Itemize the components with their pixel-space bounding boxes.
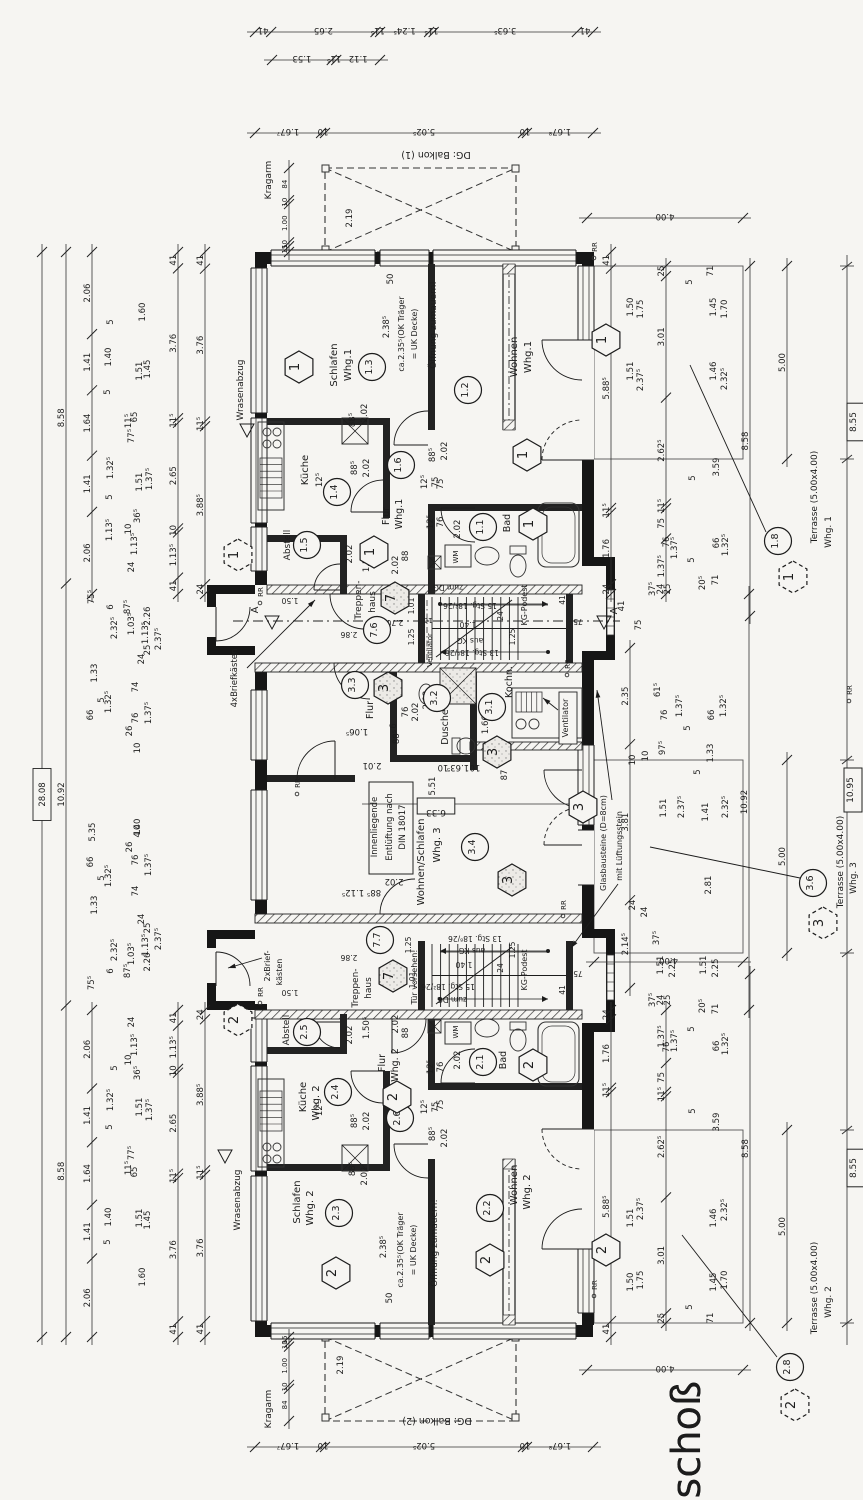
svg-text:1.12: 1.12: [349, 53, 368, 63]
svg-text:66: 66: [86, 710, 96, 721]
svg-text:WM: WM: [452, 551, 460, 564]
svg-text:3.4: 3.4: [467, 839, 478, 854]
svg-text:5: 5: [105, 1124, 115, 1129]
svg-text:2.26: 2.26: [143, 953, 153, 972]
svg-text:2.02: 2.02: [391, 1015, 401, 1034]
svg-text:1.41: 1.41: [83, 1222, 93, 1241]
svg-text:1.67⁸: 1.67⁸: [548, 1440, 571, 1450]
svg-text:24: 24: [628, 900, 638, 911]
svg-text:2.02: 2.02: [345, 1026, 355, 1045]
svg-text:2.02: 2.02: [362, 1112, 372, 1131]
svg-text:1.13⁵: 1.13⁵: [105, 519, 115, 541]
svg-text:11⁵: 11⁵: [196, 417, 206, 431]
svg-text:75: 75: [573, 969, 583, 978]
svg-text:8.58: 8.58: [741, 1139, 751, 1158]
svg-text:KG-Podest: KG-Podest: [520, 949, 529, 990]
svg-text:66: 66: [86, 857, 96, 868]
svg-text:13 Stg. 18⁸/26: 13 Stg. 18⁸/26: [445, 648, 499, 657]
svg-text:8.58: 8.58: [57, 1162, 67, 1181]
svg-text:Ventilator: Ventilator: [426, 633, 434, 667]
room-markers: 1.11.21.31.41.51.67.63.33.23.13.47.72.12…: [224, 324, 837, 1421]
svg-text:13 Stg. 18⁸/26: 13 Stg. 18⁸/26: [448, 934, 502, 943]
svg-text:1.51: 1.51: [699, 956, 709, 975]
svg-text:2.3: 2.3: [331, 1205, 342, 1220]
svg-text:3.76: 3.76: [169, 334, 179, 353]
svg-text:1.6: 1.6: [393, 457, 404, 472]
svg-text:75: 75: [657, 1072, 667, 1083]
svg-text:1.41: 1.41: [701, 803, 711, 822]
svg-text:1: 1: [595, 336, 610, 344]
svg-text:1.64: 1.64: [83, 1164, 93, 1183]
svg-text:41: 41: [558, 985, 567, 995]
svg-text:75: 75: [634, 620, 644, 631]
svg-text:1.70: 1.70: [720, 1271, 730, 1290]
svg-text:Bad: Bad: [498, 1051, 509, 1069]
svg-text:76: 76: [436, 1062, 446, 1073]
svg-text:3.63⁵: 3.63⁵: [494, 25, 516, 35]
svg-text:1.03⁵: 1.03⁵: [127, 943, 137, 965]
svg-text:41: 41: [558, 595, 567, 605]
svg-text:Wohnen: Wohnen: [509, 337, 520, 378]
svg-text:10: 10: [124, 1055, 134, 1066]
svg-text:2.02: 2.02: [360, 404, 370, 423]
svg-text:7.7: 7.7: [372, 932, 383, 947]
svg-text:1.51: 1.51: [626, 1209, 636, 1228]
svg-text:RR: RR: [560, 900, 568, 910]
svg-text:15: 15: [281, 245, 289, 254]
svg-text:76: 76: [131, 855, 141, 866]
svg-text:Treppen-: Treppen-: [354, 580, 364, 620]
svg-text:1.37⁵: 1.37⁵: [145, 468, 155, 490]
svg-text:10: 10: [438, 762, 449, 772]
svg-text:Wrasenabzug: Wrasenabzug: [236, 359, 246, 420]
svg-text:10: 10: [281, 1340, 289, 1349]
svg-text:Küche: Küche: [300, 455, 311, 485]
svg-text:zum DG: zum DG: [437, 995, 467, 1004]
svg-text:1: 1: [516, 451, 531, 459]
svg-text:Abstell: Abstell: [283, 530, 293, 561]
svg-text:RR: RR: [846, 685, 854, 695]
svg-text:88⁵: 88⁵: [428, 1127, 438, 1141]
svg-text:3.76: 3.76: [196, 336, 206, 355]
svg-text:1.13⁵: 1.13⁵: [169, 1036, 179, 1058]
svg-text:1.06⁵: 1.06⁵: [346, 726, 368, 736]
svg-text:2: 2: [784, 1401, 799, 1409]
svg-text:KG-Podest: KG-Podest: [520, 584, 529, 625]
svg-text:6: 6: [389, 723, 399, 728]
svg-text:1.51: 1.51: [626, 362, 636, 381]
interior-walls: [267, 264, 582, 1325]
svg-text:1.13⁵: 1.13⁵: [130, 533, 140, 555]
svg-text:75: 75: [657, 518, 667, 529]
svg-text:2.37⁵: 2.37⁵: [154, 628, 164, 650]
svg-text:Ventilator: Ventilator: [561, 698, 570, 737]
svg-text:1.37⁵: 1.37⁵: [145, 1099, 155, 1121]
svg-text:RR: RR: [564, 659, 572, 669]
svg-text:2.14⁵: 2.14⁵: [621, 933, 631, 955]
svg-text:2.32⁵: 2.32⁵: [110, 617, 120, 639]
svg-text:RR: RR: [591, 1280, 599, 1290]
svg-text:15 Stg. 18²/26: 15 Stg. 18²/26: [421, 982, 475, 991]
svg-text:1.32⁵: 1.32⁵: [719, 695, 729, 717]
svg-text:2.32⁵: 2.32⁵: [720, 1199, 730, 1221]
svg-text:1.50: 1.50: [281, 596, 298, 605]
svg-text:3.76: 3.76: [169, 1240, 179, 1259]
svg-text:24: 24: [196, 1009, 206, 1020]
svg-text:10: 10: [318, 126, 329, 136]
svg-text:2.37⁵: 2.37⁵: [636, 369, 646, 391]
svg-text:haus: haus: [368, 591, 378, 613]
svg-text:2.02: 2.02: [391, 556, 401, 575]
svg-text:1.51: 1.51: [135, 362, 145, 381]
svg-text:10.92: 10.92: [57, 782, 67, 806]
svg-text:84: 84: [281, 1400, 289, 1409]
svg-text:2.38⁵: 2.38⁵: [379, 1236, 389, 1258]
svg-text:12⁵: 12⁵: [426, 1060, 436, 1074]
svg-text:5: 5: [110, 1065, 120, 1070]
svg-text:1.32⁵: 1.32⁵: [721, 1033, 731, 1055]
svg-text:2.32⁵: 2.32⁵: [110, 939, 120, 961]
svg-text:25: 25: [657, 266, 667, 277]
svg-text:RR: RR: [257, 987, 265, 997]
svg-text:zum DG: zum DG: [433, 583, 463, 592]
svg-text:5.88⁵: 5.88⁵: [602, 1195, 612, 1217]
svg-text:5.00: 5.00: [778, 1217, 788, 1236]
svg-text:Bad: Bad: [502, 514, 513, 532]
svg-text:Whg. 2: Whg. 2: [305, 1190, 316, 1225]
svg-text:11⁵: 11⁵: [327, 53, 341, 63]
svg-text:aus KG: aus KG: [457, 636, 484, 645]
svg-text:5.02⁵: 5.02⁵: [413, 1440, 435, 1450]
svg-text:20⁵: 20⁵: [698, 999, 708, 1013]
svg-text:1.50⁵: 1.50⁵: [362, 1017, 372, 1039]
svg-text:DG: Balkon (2): DG: Balkon (2): [402, 1415, 471, 1426]
svg-text:Terrasse (5.00x4.00): Terrasse (5.00x4.00): [810, 451, 820, 544]
svg-text:3.88⁵: 3.88⁵: [196, 494, 206, 516]
svg-text:Wohnen/Schlafen: Wohnen/Schlafen: [416, 818, 427, 905]
svg-text:12⁵: 12⁵: [420, 1100, 430, 1114]
svg-text:kästen: kästen: [275, 959, 284, 986]
svg-text:Flur: Flur: [377, 1054, 388, 1072]
svg-text:1.25: 1.25: [404, 936, 413, 953]
svg-text:1.37⁵: 1.37⁵: [144, 854, 154, 876]
svg-text:41: 41: [169, 1324, 179, 1335]
svg-text:24: 24: [137, 914, 147, 925]
svg-text:15 Stg. 18²/26: 15 Stg. 18²/26: [443, 601, 497, 610]
svg-text:1.45: 1.45: [143, 1211, 153, 1230]
svg-text:88⁵: 88⁵: [350, 461, 360, 475]
svg-text:2.37⁵: 2.37⁵: [636, 1198, 646, 1220]
svg-text:5: 5: [687, 1026, 697, 1031]
svg-text:mit Lüftungsstein: mit Lüftungsstein: [615, 811, 624, 881]
svg-text:Whg. 3: Whg. 3: [432, 827, 443, 862]
svg-text:1.41: 1.41: [83, 474, 93, 493]
svg-text:88⁵: 88⁵: [348, 413, 358, 427]
svg-text:1.75: 1.75: [636, 300, 646, 319]
svg-text:1.67⁸: 1.67⁸: [548, 126, 571, 136]
svg-text:10: 10: [281, 1382, 289, 1391]
svg-text:3.59: 3.59: [712, 1113, 722, 1132]
svg-text:4.00: 4.00: [656, 211, 675, 221]
svg-text:2.32⁵: 2.32⁵: [721, 796, 731, 818]
svg-text:1.24⁵: 1.24⁵: [393, 25, 415, 35]
svg-text:2.02: 2.02: [453, 520, 463, 539]
svg-text:1: 1: [782, 573, 797, 581]
svg-text:4xBriefkästen: 4xBriefkästen: [230, 649, 240, 708]
svg-text:88⁵: 88⁵: [350, 1114, 360, 1128]
svg-text:76: 76: [131, 713, 141, 724]
svg-text:5: 5: [683, 725, 693, 730]
svg-text:41: 41: [580, 25, 591, 35]
svg-text:5: 5: [687, 557, 697, 562]
svg-text:1.40: 1.40: [104, 348, 114, 367]
svg-text:3.59: 3.59: [712, 458, 722, 477]
svg-text:24: 24: [137, 654, 147, 665]
svg-text:75⁵: 75⁵: [87, 590, 97, 604]
svg-text:2.86: 2.86: [340, 953, 357, 962]
svg-text:1.13⁵: 1.13⁵: [130, 1034, 140, 1056]
svg-text:24: 24: [602, 584, 612, 595]
svg-text:24: 24: [196, 584, 206, 595]
svg-text:RR: RR: [591, 242, 599, 252]
svg-text:41: 41: [617, 601, 627, 612]
svg-text:2.02: 2.02: [453, 1051, 463, 1070]
svg-text:10: 10: [470, 762, 481, 772]
svg-text:1.50: 1.50: [281, 988, 298, 997]
svg-text:2.37⁵: 2.37⁵: [154, 928, 164, 950]
svg-text:12⁵: 12⁵: [315, 473, 325, 487]
svg-text:3.76: 3.76: [196, 1238, 206, 1257]
svg-text:Wrasenabzug: Wrasenabzug: [233, 1169, 243, 1230]
svg-text:2: 2: [522, 1061, 537, 1069]
svg-text:1.2: 1.2: [460, 382, 471, 397]
svg-text:WM: WM: [452, 1026, 460, 1039]
svg-text:20⁵: 20⁵: [698, 576, 708, 590]
svg-text:2.81: 2.81: [704, 876, 714, 895]
svg-text:Küche: Küche: [298, 1082, 309, 1112]
svg-text:87: 87: [500, 770, 510, 781]
svg-text:75: 75: [436, 479, 446, 490]
svg-text:10: 10: [628, 755, 638, 766]
svg-text:Whg.1: Whg.1: [523, 341, 534, 373]
svg-text:1.32⁵: 1.32⁵: [721, 534, 731, 556]
svg-text:41: 41: [602, 1324, 612, 1335]
svg-text:11⁵: 11⁵: [169, 1169, 179, 1183]
svg-text:12⁵: 12⁵: [420, 475, 430, 489]
svg-text:1: 1: [227, 551, 242, 559]
svg-text:2.06: 2.06: [83, 1288, 93, 1307]
svg-text:88⁵: 88⁵: [428, 448, 438, 462]
svg-text:50: 50: [385, 1293, 395, 1304]
svg-text:26: 26: [125, 726, 135, 737]
svg-text:1.40: 1.40: [455, 960, 472, 969]
svg-text:2.02: 2.02: [440, 442, 450, 461]
svg-text:36⁵: 36⁵: [133, 509, 143, 523]
svg-text:2.37⁵: 2.37⁵: [677, 796, 687, 818]
svg-text:84: 84: [281, 179, 289, 188]
svg-text:25: 25: [657, 1313, 667, 1324]
svg-text:88: 88: [401, 551, 411, 562]
svg-text:87⁵: 87⁵: [123, 600, 133, 614]
svg-text:Kochn.: Kochn.: [504, 666, 515, 698]
svg-text:1.37⁵: 1.37⁵: [670, 537, 680, 559]
svg-text:2: 2: [325, 1269, 340, 1277]
svg-text:88⁵: 88⁵: [348, 1162, 358, 1176]
svg-text:1.67⁷: 1.67⁷: [276, 126, 299, 136]
svg-text:3: 3: [501, 876, 516, 884]
svg-text:2.25: 2.25: [668, 959, 678, 978]
svg-text:1.76: 1.76: [602, 1044, 612, 1063]
svg-text:41: 41: [169, 255, 179, 266]
svg-text:Entlüftung nach: Entlüftung nach: [385, 793, 395, 861]
svg-text:1.46: 1.46: [709, 362, 719, 381]
svg-text:2.4: 2.4: [330, 1084, 341, 1099]
svg-text:1.37⁵: 1.37⁵: [670, 1030, 680, 1052]
svg-text:11⁵: 11⁵: [196, 1166, 206, 1180]
svg-text:1.41: 1.41: [83, 1106, 93, 1125]
svg-text:5: 5: [688, 1108, 698, 1113]
svg-text:61⁵: 61⁵: [653, 683, 663, 697]
svg-text:2.8: 2.8: [782, 1359, 793, 1374]
svg-text:2.19: 2.19: [345, 209, 355, 228]
svg-text:2.86: 2.86: [340, 630, 357, 639]
svg-text:5.35: 5.35: [88, 823, 98, 842]
svg-text:2.62⁵: 2.62⁵: [657, 439, 667, 461]
svg-text:Terrasse (5.00x4.00): Terrasse (5.00x4.00): [810, 1242, 820, 1335]
svg-text:1.70: 1.70: [720, 300, 730, 319]
svg-text:1.41: 1.41: [83, 353, 93, 372]
svg-text:4.00: 4.00: [656, 1363, 675, 1373]
svg-text:1.51: 1.51: [656, 956, 666, 975]
svg-text:8.55: 8.55: [849, 412, 859, 432]
svg-text:11⁵: 11⁵: [371, 25, 385, 35]
svg-text:1.40: 1.40: [459, 620, 476, 629]
svg-text:5.88⁵: 5.88⁵: [602, 377, 612, 399]
svg-text:11⁵: 11⁵: [169, 413, 179, 427]
svg-text:24: 24: [127, 562, 137, 573]
svg-text:3.88⁵: 3.88⁵: [196, 1084, 206, 1106]
svg-text:5.00: 5.00: [778, 353, 788, 372]
svg-text:2.06: 2.06: [83, 1040, 93, 1059]
svg-text:24: 24: [496, 611, 505, 621]
svg-text:10: 10: [641, 751, 651, 762]
svg-text:2.01: 2.01: [363, 760, 382, 770]
svg-text:10: 10: [133, 743, 143, 754]
svg-text:1.60: 1.60: [138, 1268, 148, 1287]
svg-text:1.33: 1.33: [90, 896, 100, 915]
svg-text:eschoß: eschoß: [664, 1381, 710, 1500]
svg-text:Öffnung zumauern!: Öffnung zumauern!: [429, 1199, 440, 1287]
svg-text:Kragarm: Kragarm: [264, 1390, 274, 1429]
svg-text:5.00: 5.00: [778, 847, 788, 866]
svg-text:5: 5: [103, 389, 113, 394]
svg-text:11⁵: 11⁵: [124, 414, 134, 428]
svg-text:Whg. 2: Whg. 2: [824, 1286, 834, 1318]
svg-text:2.02: 2.02: [345, 545, 355, 564]
svg-text:1.33: 1.33: [90, 664, 100, 683]
svg-text:75: 75: [573, 617, 583, 626]
svg-text:24: 24: [602, 1009, 612, 1020]
svg-text:11⁵: 11⁵: [602, 1083, 612, 1097]
svg-text:1.32⁵: 1.32⁵: [104, 865, 114, 887]
svg-text:1.3: 1.3: [364, 359, 375, 374]
svg-text:Whg.1: Whg.1: [343, 349, 354, 381]
svg-text:41: 41: [258, 25, 269, 35]
svg-text:75⁵: 75⁵: [87, 976, 97, 990]
svg-text:41: 41: [602, 255, 612, 266]
svg-text:12⁵: 12⁵: [426, 515, 436, 529]
svg-text:2.06: 2.06: [83, 284, 93, 303]
svg-text:3: 3: [812, 919, 827, 927]
svg-text:Dusche: Dusche: [440, 709, 451, 745]
svg-text:Whg. 2: Whg. 2: [522, 1174, 533, 1209]
svg-text:5.02⁵: 5.02⁵: [413, 126, 435, 136]
svg-text:Treppen-: Treppen-: [351, 968, 361, 1008]
svg-text:2: 2: [386, 1093, 401, 1101]
svg-text:12⁵: 12⁵: [315, 1102, 325, 1116]
svg-text:25: 25: [663, 995, 673, 1006]
svg-text:Flur: Flur: [365, 701, 376, 719]
svg-text:Glasbausteine (D=8cm): Glasbausteine (D=8cm): [599, 795, 608, 891]
svg-text:74: 74: [131, 886, 141, 897]
svg-text:76: 76: [660, 710, 670, 721]
svg-text:1.8: 1.8: [770, 533, 781, 548]
svg-text:3.01: 3.01: [657, 1246, 667, 1265]
svg-text:3: 3: [486, 748, 501, 756]
svg-text:16: 16: [423, 616, 432, 624]
svg-text:2.02: 2.02: [360, 1167, 370, 1186]
svg-text:24: 24: [127, 1017, 137, 1028]
svg-text:1.00: 1.00: [281, 1358, 289, 1374]
svg-text:74: 74: [131, 682, 141, 693]
svg-text:2.38⁵: 2.38⁵: [382, 316, 392, 338]
svg-text:8.58: 8.58: [741, 432, 751, 451]
svg-text:1: 1: [288, 363, 303, 371]
svg-text:1.03⁵: 1.03⁵: [127, 613, 137, 635]
svg-text:Whg. 2: Whg. 2: [390, 1048, 401, 1082]
svg-text:10: 10: [318, 1440, 329, 1450]
svg-text:10: 10: [169, 525, 179, 536]
floorplan-page: 28.088.5810.928.582.061.411.641.412.062.…: [0, 0, 863, 1500]
svg-text:2.62⁵: 2.62⁵: [657, 1136, 667, 1158]
svg-text:1.45: 1.45: [709, 1273, 719, 1292]
svg-text:1.5: 1.5: [299, 537, 310, 552]
svg-text:3.3: 3.3: [347, 677, 358, 692]
svg-text:6: 6: [106, 604, 116, 609]
svg-text:75: 75: [436, 1100, 446, 1111]
svg-text:2.02: 2.02: [411, 703, 421, 722]
svg-text:Whg. 1: Whg. 1: [824, 516, 834, 548]
svg-text:Schlafen: Schlafen: [329, 343, 340, 386]
svg-text:7: 7: [382, 972, 397, 980]
outer-walls: [207, 252, 615, 1337]
svg-text:2xBrief-: 2xBrief-: [263, 950, 272, 981]
svg-text:2.35: 2.35: [621, 687, 631, 706]
svg-text:6: 6: [106, 968, 116, 973]
svg-text:1.53: 1.53: [292, 53, 311, 63]
svg-text:2.65: 2.65: [169, 466, 179, 485]
svg-text:11⁵: 11⁵: [657, 499, 667, 513]
svg-text:7: 7: [384, 594, 399, 602]
svg-text:3: 3: [377, 684, 392, 692]
svg-text:Whg. 3: Whg. 3: [849, 862, 859, 894]
svg-text:1.50: 1.50: [626, 1273, 636, 1292]
svg-text:1.33: 1.33: [706, 744, 716, 763]
svg-text:5: 5: [693, 769, 703, 774]
svg-text:2.26: 2.26: [143, 607, 153, 626]
svg-text:Kragarm: Kragarm: [264, 161, 274, 200]
svg-text:1.01: 1.01: [408, 971, 417, 988]
